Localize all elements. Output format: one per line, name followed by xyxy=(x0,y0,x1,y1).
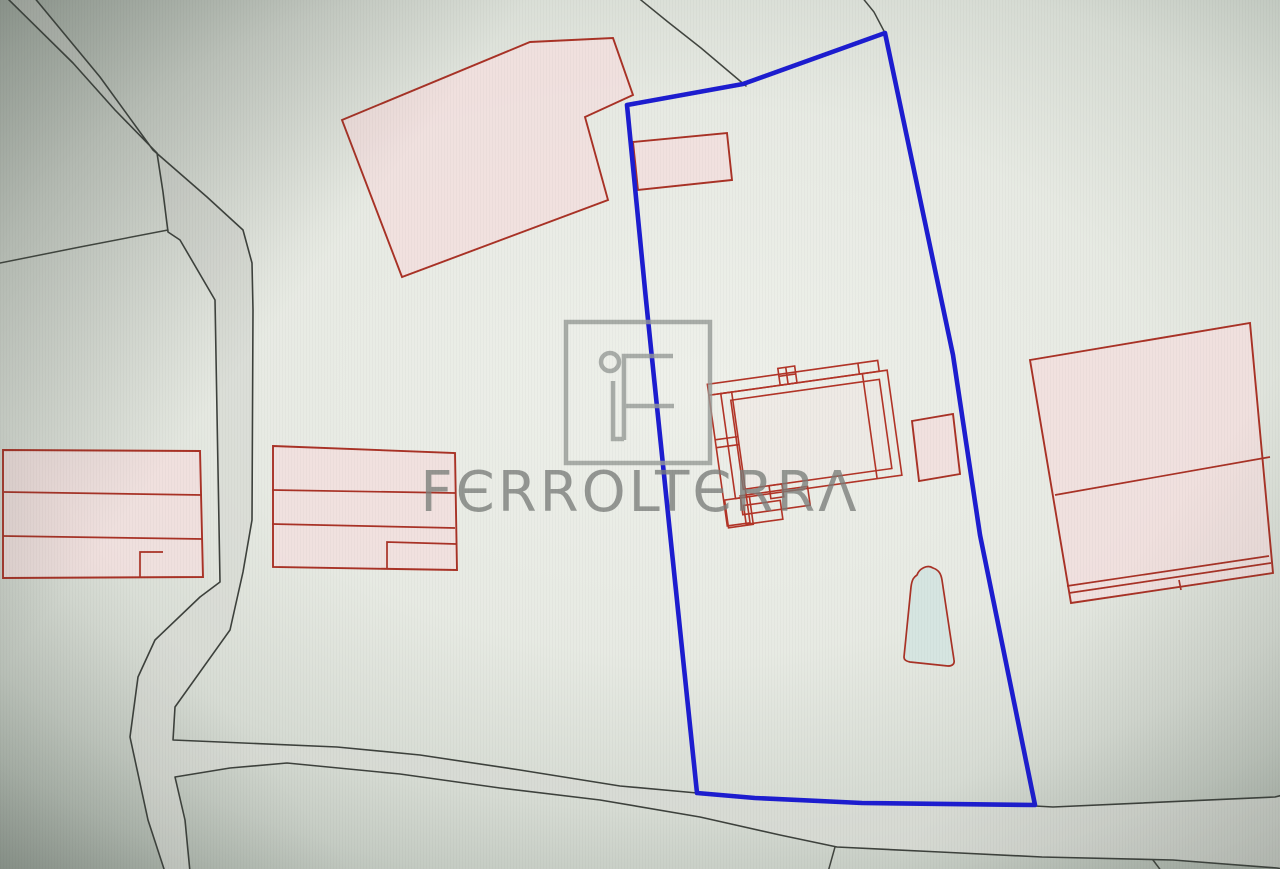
pool xyxy=(904,567,954,666)
map-canvas[interactable] xyxy=(0,0,1280,869)
cluster-cross-lines xyxy=(778,366,797,385)
cluster-strip-divider xyxy=(858,363,860,374)
building-cluster-center xyxy=(707,353,906,528)
parcel-line-left xyxy=(0,230,168,263)
parcel-line-bottom-right xyxy=(1153,860,1162,869)
building-group-left-outer xyxy=(3,450,203,578)
parcel-line-bottom-center xyxy=(828,847,835,869)
building-small-annex xyxy=(912,414,960,481)
building-top-left xyxy=(342,38,633,277)
building-inside-boundary-top xyxy=(633,133,732,190)
building-group-center-outer xyxy=(273,446,457,570)
parcel-line-top-center xyxy=(636,0,746,86)
parcel-line-top-right xyxy=(861,0,885,33)
cluster-inner-rect xyxy=(731,379,892,489)
map-viewport[interactable]: FЄRROLTЄRRΛ xyxy=(0,0,1280,869)
